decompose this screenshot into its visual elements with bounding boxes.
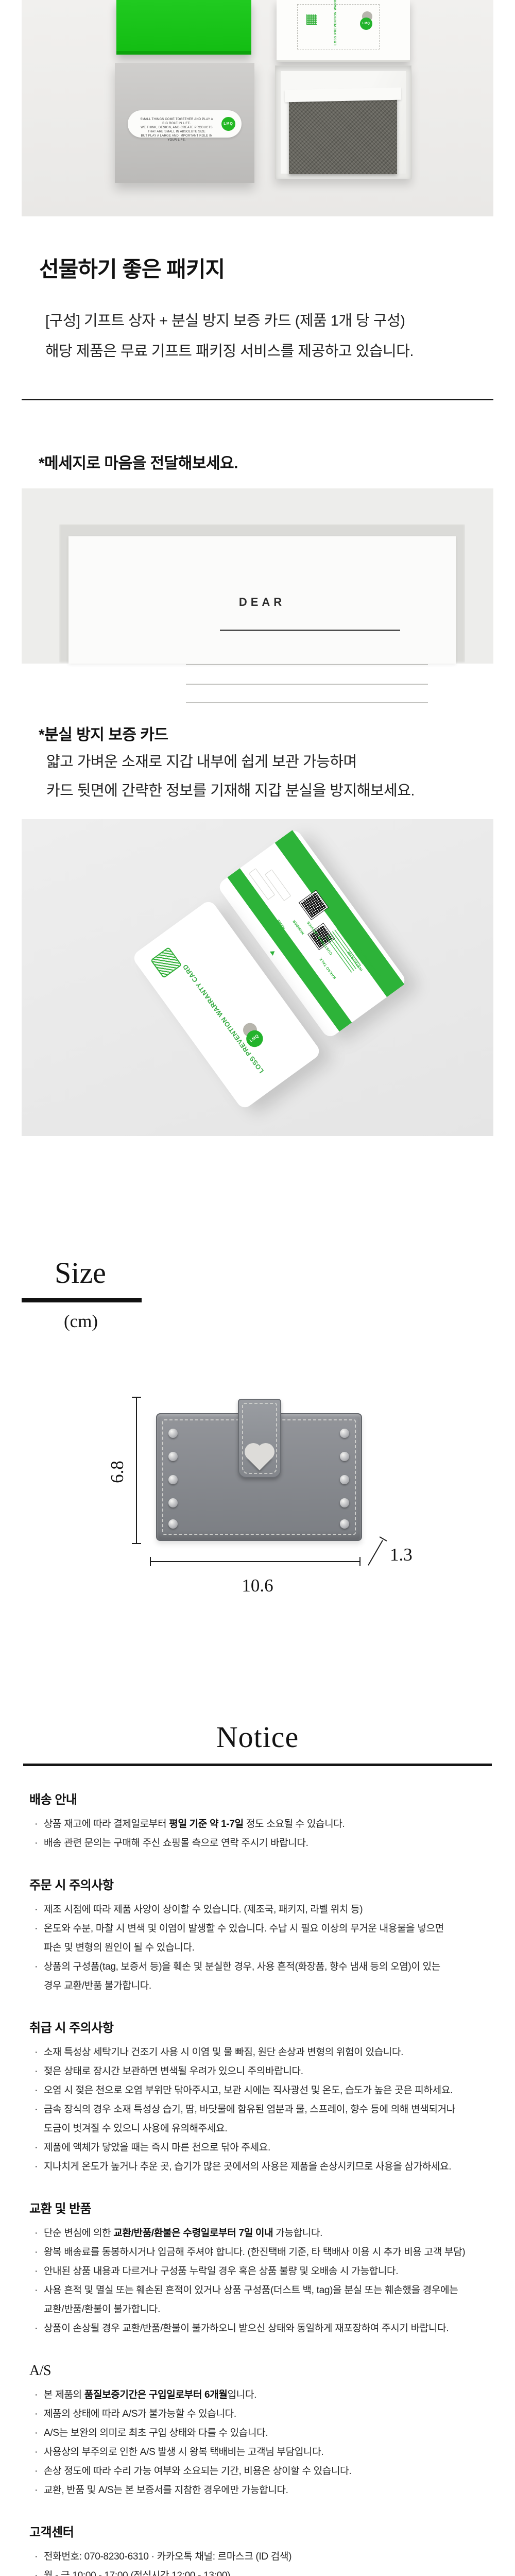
notice-item: ·단순 변심에 의한 교환/반품/환불은 수령일로부터 7일 이내 가능합니다. xyxy=(29,2224,515,2243)
brand-initials: LMQ xyxy=(224,122,233,126)
size-title-underline xyxy=(22,1298,142,1302)
notice-item: ·교환, 반품 및 A/S는 본 보증서를 지참한 경우에만 가능합니다. xyxy=(29,2481,515,2500)
card-arrow-icon xyxy=(270,949,276,956)
lid-vertical-text: LOSS PREVENTION WARRANTY CARD xyxy=(334,0,337,45)
notice-item: ·왕복 배송료를 동봉하시거나 입금해 주셔야 합니다. (한진택배 기준, 타… xyxy=(29,2243,515,2262)
size-section-title: Size xyxy=(55,1256,106,1290)
stud xyxy=(340,1429,349,1438)
dim-cap xyxy=(132,1543,141,1544)
bullet-icon: · xyxy=(35,2443,38,2462)
bullet-icon: · xyxy=(35,2243,38,2262)
felt-wallet xyxy=(289,96,397,174)
brand-label-line: WE THINK, DESIGN, AND CREATE PRODUCTS TH… xyxy=(138,126,215,134)
lmq-logo-icon: LMQ xyxy=(360,11,373,32)
notice-item: ·안내된 상품 내용과 다르거나 구성품 누락일 경우 혹은 상품 불량 및 오… xyxy=(29,2262,515,2281)
bullet-icon: · xyxy=(35,1815,38,1834)
card-green-band xyxy=(275,830,404,997)
bullet-icon: · xyxy=(35,2319,38,2338)
bullet-icon: · xyxy=(35,2100,38,2119)
brand-label-text: SMALL THINGS COME TOGETHER AND PLAY A BI… xyxy=(138,117,215,142)
notice-item: ·지나치게 온도가 높거나 추운 곳, 습기가 많은 곳에서의 사용은 제품을 … xyxy=(29,2157,515,2176)
bullet-icon: · xyxy=(35,2566,38,2576)
warranty-desc-1: 얇고 가벼운 소재로 지갑 내부에 쉽게 보관 가능하며 xyxy=(46,750,357,771)
tissue-fold xyxy=(285,88,401,103)
stud xyxy=(168,1452,178,1461)
kakao-label: KAKAO TALK xyxy=(319,957,337,979)
notice-group-heading: 교환 및 반품 xyxy=(29,2199,515,2218)
warranty-cards-photo: NAME NUMBER CUSTOMER SERVICE KAKAO TALK … xyxy=(22,819,493,1136)
notice-section-title: Notice xyxy=(0,1720,515,1754)
notice-item: ·제조 시점에 따라 제품 사양이 상이할 수 있습니다. (제조국, 패키지,… xyxy=(29,1900,515,1919)
bullet-icon: · xyxy=(35,2424,38,2443)
stud xyxy=(168,1475,178,1484)
notice-item: ·A/S는 보완의 의미로 최초 구입 상태와 다를 수 있습니다. xyxy=(29,2424,515,2443)
notice-item: ·배송 관련 문의는 구매해 주신 쇼핑몰 측으로 연락 주시기 바랍니다. xyxy=(29,1834,515,1853)
notice-item: ·손상 정도에 따라 수리 가능 여부와 소요되는 기간, 비용은 상이할 수 … xyxy=(29,2462,515,2481)
logo-green-circle: LMQ xyxy=(360,18,372,30)
message-card: DEAR xyxy=(68,536,456,664)
notice-group-heading: 고객센터 xyxy=(29,2523,515,2542)
warranty-section-title: *분실 방지 보증 카드 xyxy=(39,722,168,744)
writing-line xyxy=(186,664,428,665)
notice-item: ·온도와 수분, 마찰 시 변색 및 이염이 발생할 수 있습니다. 수납 시 … xyxy=(29,1919,515,1957)
depth-dim-value: 1.3 xyxy=(390,1545,413,1565)
bullet-icon: · xyxy=(35,1957,38,1976)
dim-cap xyxy=(132,1397,141,1398)
notice-item: ·오염 시 젖은 천으로 오염 부위만 닦아주시고, 보관 시에는 직사광선 및… xyxy=(29,2081,515,2100)
width-dim-value: 10.6 xyxy=(232,1575,283,1596)
brand-initials: LMQ xyxy=(363,22,370,25)
notice-item: ·상품이 손상될 경우 교환/반품/환불이 불가하오니 받으신 상태와 동일하게… xyxy=(29,2319,515,2338)
bullet-icon: · xyxy=(35,2224,38,2243)
notice-item: ·제품의 상태에 따라 A/S가 불가능할 수 있습니다. xyxy=(29,2404,515,2424)
bullet-icon: · xyxy=(35,2081,38,2100)
dim-cap xyxy=(359,1557,360,1566)
notice-group: 배송 안내·상품 재고에 따라 결제일로부터 평일 기준 약 1-7일 정도 소… xyxy=(29,1790,515,1853)
notice-group-heading: 주문 시 주의사항 xyxy=(29,1876,515,1895)
bullet-icon: · xyxy=(35,2385,38,2404)
notice-item: ·상품 재고에 따라 결제일로부터 평일 기준 약 1-7일 정도 소요될 수 … xyxy=(29,1815,515,1834)
notice-item: ·월 - 금 10:00 - 17:00 (점심시간 12:00 - 13:00… xyxy=(29,2566,515,2576)
dim-cap xyxy=(150,1557,151,1566)
bullet-icon: · xyxy=(35,2481,38,2500)
height-dim-value: 6.8 xyxy=(107,1456,128,1487)
brand-label-sticker: SMALL THINGS COME TOGETHER AND PLAY A BI… xyxy=(128,110,242,138)
bullet-icon: · xyxy=(35,2547,38,2566)
brand-emblem-icon xyxy=(150,947,182,978)
brand-badge-icon: LMQ xyxy=(221,117,235,131)
dear-label: DEAR xyxy=(68,596,456,609)
stud xyxy=(340,1519,349,1529)
depth-dim-line xyxy=(368,1540,383,1565)
bullet-icon: · xyxy=(35,1900,38,1919)
stud xyxy=(340,1475,349,1484)
notice-item: ·제품에 액체가 닿았을 때는 즉시 마른 천으로 닦아 주세요. xyxy=(29,2138,515,2157)
notice-group: 주문 시 주의사항·제조 시점에 따라 제품 사양이 상이할 수 있습니다. (… xyxy=(29,1876,515,1995)
bullet-icon: · xyxy=(35,2262,38,2281)
bullet-icon: · xyxy=(35,1919,38,1938)
bullet-icon: · xyxy=(35,2404,38,2424)
brand-label-line: BUT PLAY A LARGE AND IMPORTANT ROLE IN Y… xyxy=(138,134,215,142)
stud xyxy=(168,1429,178,1438)
stud xyxy=(340,1498,349,1507)
notice-item: ·상품의 구성품(tag, 보증서 등)을 훼손 및 분실한 경우, 사용 흔적… xyxy=(29,1957,515,1995)
bullet-icon: · xyxy=(35,1834,38,1853)
brand-initials: LMQ xyxy=(249,1034,260,1043)
notice-item: ·본 제품의 품질보증기간은 구입일로부터 6개월입니다. xyxy=(29,2385,515,2404)
notice-groups: 배송 안내·상품 재고에 따라 결제일로부터 평일 기준 약 1-7일 정도 소… xyxy=(0,1790,515,2576)
bullet-icon: · xyxy=(35,2157,38,2176)
warranty-card-title: LOSS PREVENTION WARRANTY CARD xyxy=(181,963,265,1075)
gift-section-title: 선물하기 좋은 패키지 xyxy=(39,252,225,283)
notice-group-heading: 배송 안내 xyxy=(29,1790,515,1809)
stud xyxy=(168,1519,178,1529)
gift-free-service-line: 해당 제품은 무료 기프트 패키징 서비스를 제공하고 있습니다. xyxy=(45,339,414,361)
notice-item: ·사용상의 부주의로 인한 A/S 발생 시 왕복 택배비는 고객님 부담입니다… xyxy=(29,2443,515,2462)
gift-box-photo: SMALL THINGS COME TOGETHER AND PLAY A BI… xyxy=(22,0,493,216)
notice-group: 취급 시 주의사항·소재 특성상 세탁기나 건조기 사용 시 이염 및 물 빠짐… xyxy=(29,2019,515,2176)
gift-box-green-lid xyxy=(116,0,251,55)
brand-label-line: SMALL THINGS COME TOGETHER AND PLAY A BI… xyxy=(138,117,215,126)
notice-item: ·젖은 상태로 장시간 보관하면 변색될 우려가 있으니 주의바랍니다. xyxy=(29,2062,515,2081)
bullet-icon: · xyxy=(35,2462,38,2481)
notice-item: ·사용 흔적 및 멸실 또는 훼손된 흔적이 있거나 상품 구성품(더스트 백,… xyxy=(29,2281,515,2319)
bullet-icon: · xyxy=(35,2043,38,2062)
size-unit-label: (cm) xyxy=(64,1311,98,1332)
wallet-strap xyxy=(238,1399,281,1478)
notice-item: ·소재 특성상 세탁기나 건조기 사용 시 이염 및 물 빠짐, 원단 손상과 … xyxy=(29,2043,515,2062)
warranty-desc-2: 카드 뒷면에 간략한 정보를 기재해 지갑 분실을 방지해보세요. xyxy=(46,778,415,800)
dim-cap xyxy=(380,1536,387,1541)
open-box-with-wallet xyxy=(275,65,411,179)
notice-item: ·전화번호: 070-8230-6310 · 카카오톡 채널: 르마스크 (ID… xyxy=(29,2547,515,2566)
notice-item: ·금속 장식의 경우 소재 특성상 습기, 땀, 바닷물에 함유된 염분과 물,… xyxy=(29,2100,515,2138)
message-section-title: *메세지로 마음을 전달해보세요. xyxy=(39,450,238,473)
bullet-icon: · xyxy=(35,2138,38,2157)
bullet-icon: · xyxy=(35,2062,38,2081)
product-detail-page: SMALL THINGS COME TOGETHER AND PLAY A BI… xyxy=(0,0,515,2576)
height-dim-line xyxy=(136,1397,137,1544)
gift-composition-line: [구성] 기프트 상자 + 분실 방지 보증 카드 (제품 1개 당 구성) xyxy=(45,309,405,330)
heart-ornament-icon xyxy=(247,1446,272,1470)
notice-group: 고객센터·전화번호: 070-8230-6310 · 카카오톡 채널: 르마스크… xyxy=(29,2523,515,2576)
stud xyxy=(168,1498,178,1507)
notice-group: A/S·본 제품의 품질보증기간은 구입일로부터 6개월입니다.·제품의 상태에… xyxy=(29,2361,515,2500)
gift-box-base: SMALL THINGS COME TOGETHER AND PLAY A BI… xyxy=(115,63,254,183)
notice-divider xyxy=(23,1764,492,1766)
stud xyxy=(340,1452,349,1461)
notice-group-heading: 취급 시 주의사항 xyxy=(29,2019,515,2038)
lid-qr-icon xyxy=(306,14,317,25)
bullet-icon: · xyxy=(35,2281,38,2300)
notice-group: 교환 및 반품·단순 변심에 의한 교환/반품/환불은 수령일로부터 7일 이내… xyxy=(29,2199,515,2338)
writing-line xyxy=(186,684,428,685)
writing-line xyxy=(186,702,428,703)
width-dim-line xyxy=(150,1561,360,1562)
writing-line xyxy=(220,630,400,631)
message-card-photo: DEAR xyxy=(22,488,493,664)
wallet-diagram xyxy=(156,1413,362,1541)
number-label: NUMBER xyxy=(292,919,305,935)
notice-group-heading: A/S xyxy=(29,2361,515,2380)
warranty-box-lid: LOSS PREVENTION WARRANTY CARD LMQ xyxy=(277,0,410,62)
section-divider xyxy=(22,399,493,400)
